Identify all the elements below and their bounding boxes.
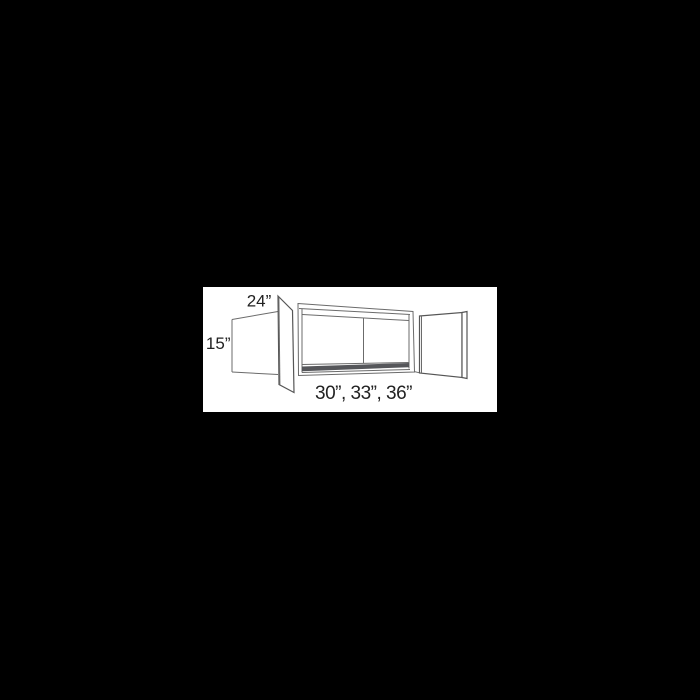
height-label: 15” [206, 334, 231, 353]
diagram-panel: 24” 15” 30”, 33”, 36” [203, 287, 497, 412]
depth-dimension-line [232, 312, 278, 320]
bottom-projection-line [232, 372, 278, 375]
cabinet-box [298, 304, 415, 376]
right-door-hinge-mark [414, 372, 420, 373]
left-door-panel [278, 296, 294, 393]
left-door [278, 296, 294, 393]
cabinet-diagram-svg: 24” 15” 30”, 33”, 36” [203, 287, 497, 412]
depth-label: 24” [247, 292, 272, 311]
width-options-label: 30”, 33”, 36” [315, 383, 412, 404]
right-door-panel [420, 313, 463, 378]
right-door [414, 312, 467, 379]
page-background: 24” 15” 30”, 33”, 36” [0, 0, 700, 700]
dimension-lines [232, 312, 278, 375]
right-door-edge-strip [462, 312, 467, 379]
